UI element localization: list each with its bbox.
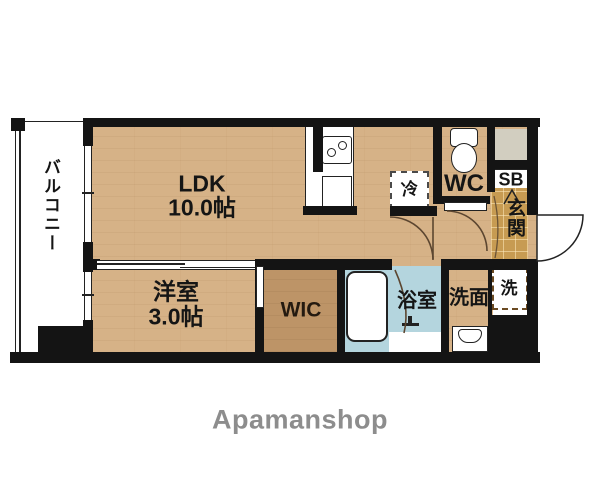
wic-bath-wall xyxy=(337,259,345,352)
window-ldk-balcony xyxy=(84,146,92,242)
wc-left-wall xyxy=(433,118,442,203)
wc-label: WC xyxy=(444,171,484,197)
fridge-label: 冷 xyxy=(400,180,420,201)
balcony-railing-inner-line xyxy=(19,126,21,353)
bath-washroom-wall xyxy=(441,259,449,352)
meterbox-bottom-wall xyxy=(487,160,538,169)
bathroom-entry-strip xyxy=(389,332,443,352)
wall-left-c xyxy=(83,320,93,354)
ldk-size-label: 10.0帖 xyxy=(168,196,236,221)
wall-top xyxy=(83,118,540,127)
wic-door-leaf xyxy=(256,266,264,308)
wic-label: WIC xyxy=(281,300,322,323)
washer-label: 洗 xyxy=(501,280,518,298)
wic-top-wall xyxy=(255,259,345,270)
western-room-label: 洋室 xyxy=(153,280,199,305)
ldk-label: LDK xyxy=(178,172,225,197)
kitchen-sink xyxy=(322,176,352,207)
balcony-label: バルコニー xyxy=(38,158,63,253)
genkan-label: 玄関 xyxy=(501,198,528,238)
meter-box xyxy=(495,129,527,160)
shoe-box-label: SB xyxy=(498,170,523,189)
stove-burner-icon xyxy=(338,141,347,150)
washroom-label: 洗面 xyxy=(449,288,489,310)
wc-door-leaf xyxy=(444,202,487,211)
window-tick xyxy=(82,294,94,296)
floorplan-canvas: バルコニー LDK 10.0帖 洋室 3.0帖 WIC 冷 WC SB 玄関 浴… xyxy=(0,0,600,480)
bathroom-label: 浴室 xyxy=(397,291,437,313)
stove-burner-icon xyxy=(327,148,336,157)
wall-left-a xyxy=(83,118,93,146)
window-western-balcony xyxy=(84,272,92,320)
bathtub xyxy=(346,271,388,342)
bath-faucet-stem-icon xyxy=(408,316,412,324)
sliding-door-ldk-western xyxy=(97,260,258,270)
window-tick xyxy=(82,192,94,194)
apamanshop-logo: Apamanshop xyxy=(212,405,388,436)
counter-end-wall xyxy=(303,206,357,215)
ldk-door-stub-wall xyxy=(390,206,437,216)
western-room-size-label: 3.0帖 xyxy=(149,305,204,330)
balcony-corner-post xyxy=(11,118,25,131)
bath-top-wall xyxy=(337,259,392,270)
kitchen-stub-wall xyxy=(313,125,323,172)
wall-right-lower xyxy=(527,259,538,359)
toilet-bowl xyxy=(451,143,477,173)
wc-sb-wall xyxy=(487,118,495,192)
